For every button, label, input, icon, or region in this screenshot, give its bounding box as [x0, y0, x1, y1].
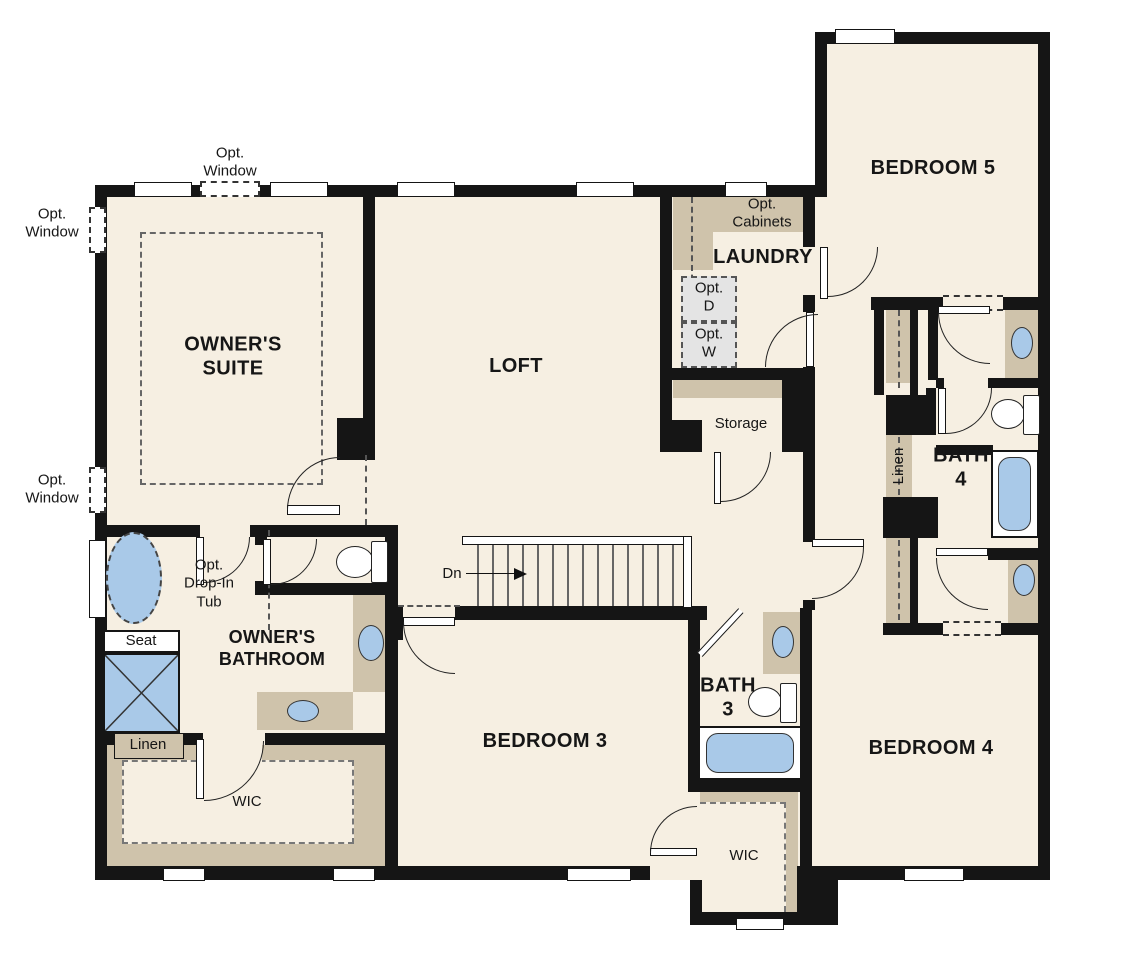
window: [163, 868, 205, 881]
stair-tread: [552, 545, 554, 606]
window: [835, 29, 895, 44]
sink: [772, 626, 794, 658]
stair-tread: [567, 545, 569, 606]
wall: [926, 388, 936, 435]
dashed-line: [365, 455, 367, 525]
drop-in-tub: [106, 532, 162, 624]
dashed-line: [398, 605, 460, 607]
wall: [815, 32, 827, 197]
room-label-owners-bathroom: OWNER'S BATHROOM: [219, 627, 325, 671]
window: [736, 918, 784, 930]
laundry-cabinet-strip: [673, 197, 713, 270]
wall: [988, 548, 1038, 560]
wall: [883, 623, 943, 635]
room-label-bath4: BATH 4: [933, 444, 989, 493]
room-label-bath3: BATH 3: [700, 674, 756, 723]
window: [89, 540, 106, 618]
door-leaf: [714, 452, 721, 504]
shower: [103, 653, 180, 733]
wall: [1003, 297, 1038, 310]
stair-railing: [683, 536, 692, 608]
door-leaf: [936, 548, 988, 556]
wall: [910, 538, 918, 623]
stair-tread: [657, 545, 659, 606]
label-opt-drop-in-tub: Opt. Drop-In Tub: [184, 557, 234, 612]
opt-door-opening: [943, 621, 1001, 636]
wall: [803, 600, 815, 610]
room-label-bedroom5: BEDROOM 5: [871, 156, 996, 180]
toilet-tank: [1023, 395, 1040, 435]
wall: [874, 310, 884, 395]
down-arrow-line: [466, 573, 516, 574]
label-opt-dryer: Opt. D: [695, 280, 723, 317]
toilet-tank: [371, 541, 388, 583]
label-wic-bedroom3: WIC: [729, 847, 758, 865]
door-leaf: [196, 739, 204, 799]
dashed-line: [898, 310, 900, 388]
room-label-bedroom3: BEDROOM 3: [483, 729, 608, 753]
wall: [660, 197, 672, 452]
storage-shelf: [673, 380, 782, 398]
wall: [910, 310, 918, 395]
dashed-line: [898, 540, 900, 620]
sink: [1011, 327, 1033, 359]
window: [576, 182, 634, 197]
label-opt-window-left1: Opt. Window: [25, 206, 78, 243]
wall: [660, 368, 803, 380]
window: [333, 868, 375, 881]
stair-railing: [462, 536, 692, 545]
wall: [871, 297, 943, 310]
stair-tread: [627, 545, 629, 606]
shower-x-icon: [105, 655, 178, 731]
wall: [1038, 32, 1050, 880]
toilet-bowl: [991, 399, 1025, 429]
window: [134, 182, 192, 197]
wall: [688, 778, 812, 792]
wall: [455, 606, 707, 620]
wall: [928, 310, 938, 380]
wic3-shelf-right: [784, 804, 798, 912]
wall: [337, 418, 375, 460]
opt-window: [200, 181, 260, 197]
stair-tread: [492, 545, 494, 606]
label-seat: Seat: [126, 632, 157, 650]
wall: [95, 525, 200, 537]
door-leaf: [820, 247, 828, 299]
stair-tread: [612, 545, 614, 606]
label-down: Dn: [442, 565, 461, 583]
label-linen-hall: Linen: [890, 448, 908, 485]
stair-tread: [597, 545, 599, 606]
floor-plan: OWNER'S SUITE LOFT LAUNDRY BEDROOM 5 BAT…: [0, 0, 1137, 976]
wall: [988, 378, 1038, 388]
wall: [883, 497, 938, 538]
toilet-tank: [780, 683, 797, 723]
wall: [782, 380, 803, 452]
sink: [287, 700, 319, 722]
label-opt-cabinets: Opt. Cabinets: [732, 196, 791, 233]
label-wic-owner: WIC: [232, 793, 261, 811]
stair-tread: [507, 545, 509, 606]
room-label-owners-suite: OWNER'S SUITE: [184, 333, 282, 382]
sink: [1013, 564, 1035, 596]
window: [904, 868, 964, 881]
down-arrow-head: [514, 568, 527, 580]
label-opt-washer: Opt. W: [695, 326, 723, 363]
wall: [1001, 623, 1038, 635]
wall: [265, 733, 387, 745]
door-leaf: [812, 539, 864, 547]
wall: [803, 197, 815, 247]
room-label-loft: LOFT: [489, 354, 543, 378]
label-storage: Storage: [715, 415, 768, 433]
wall: [363, 197, 375, 422]
stair-tread: [582, 545, 584, 606]
stair-tread: [477, 545, 479, 606]
wall: [385, 606, 403, 640]
stair-tread: [672, 545, 674, 606]
wall: [803, 295, 815, 312]
room-label-bedroom4: BEDROOM 4: [869, 736, 994, 760]
wall: [250, 525, 393, 537]
door-leaf: [938, 388, 946, 434]
wall: [670, 420, 702, 452]
stair-tread: [642, 545, 644, 606]
opt-window: [89, 207, 106, 253]
bathtub-basin: [706, 733, 794, 773]
toilet-bowl: [336, 546, 374, 578]
stair-tread: [537, 545, 539, 606]
bathtub-basin: [998, 457, 1031, 531]
window: [567, 868, 631, 881]
label-opt-window-top: Opt. Window: [203, 145, 256, 182]
door-leaf: [263, 539, 271, 585]
label-opt-window-left2: Opt. Window: [25, 472, 78, 509]
sink: [358, 625, 384, 661]
opt-window: [89, 467, 106, 513]
room-label-laundry: LAUNDRY: [713, 245, 813, 269]
window: [270, 182, 328, 197]
wall: [803, 367, 815, 542]
label-linen-owner: Linen: [130, 736, 167, 754]
window: [397, 182, 455, 197]
